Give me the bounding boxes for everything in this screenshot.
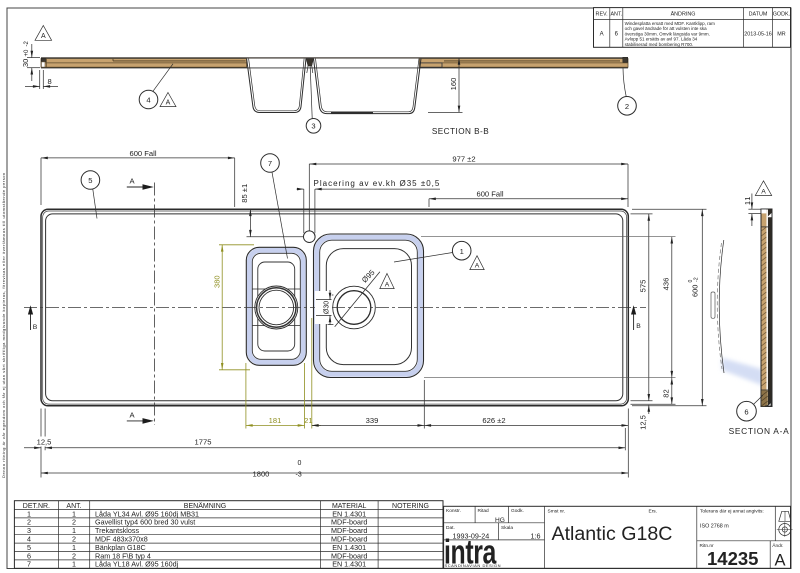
svg-text:82: 82 [661, 389, 670, 397]
svg-text:Låda YL18 Avl. Ø95 160dj: Låda YL18 Avl. Ø95 160dj [95, 560, 179, 569]
svg-text:B: B [33, 324, 38, 331]
svg-text:1:6: 1:6 [531, 531, 541, 540]
svg-text:436: 436 [661, 278, 670, 291]
svg-text:REV.: REV. [596, 12, 608, 18]
svg-text:ÄNDRING: ÄNDRING [671, 11, 696, 18]
svg-text:A: A [600, 32, 604, 38]
svg-text:14235: 14235 [707, 548, 758, 569]
svg-text:Smst nr.: Smst nr. [548, 509, 566, 515]
svg-text:160: 160 [449, 78, 458, 91]
svg-text:Ers.: Ers. [649, 509, 658, 515]
svg-text:Denna ritning är vår egendom o: Denna ritning är vår egendom och får ej … [1, 172, 6, 478]
svg-text:12,5: 12,5 [639, 415, 648, 430]
svg-text:626 ±2: 626 ±2 [482, 416, 505, 425]
svg-text:600: 600 [691, 285, 700, 297]
svg-text:1800: 1800 [253, 470, 270, 479]
svg-text:SCANDINAVIAN DESIGN: SCANDINAVIAN DESIGN [445, 563, 502, 568]
svg-text:12,5: 12,5 [37, 438, 52, 447]
svg-text:A: A [475, 262, 480, 269]
svg-text:B: B [636, 323, 641, 330]
svg-text:21: 21 [304, 416, 312, 425]
svg-text:Avlopp 51 ersätts av avl 97. L: Avlopp 51 ersätts av avl 97. Låda 34 [625, 36, 698, 42]
svg-text:977 ±2: 977 ±2 [452, 154, 475, 163]
svg-text:1: 1 [460, 247, 464, 256]
svg-text:Ändr.: Ändr. [772, 542, 783, 549]
svg-text:+0: +0 [24, 49, 30, 57]
svg-text:0: 0 [688, 280, 694, 283]
svg-text:Atlantic G18C: Atlantic G18C [552, 523, 673, 545]
svg-text:-2: -2 [694, 277, 700, 282]
svg-text:stabiliserad med bombering R70: stabiliserad med bombering R700. [625, 42, 694, 47]
svg-text:2013-05-16: 2013-05-16 [744, 32, 772, 38]
svg-text:-3: -3 [296, 472, 302, 479]
svg-text:1775: 1775 [195, 438, 212, 447]
svg-text:A: A [385, 281, 390, 288]
svg-text:-2: -2 [24, 41, 30, 47]
svg-text:Dat.: Dat. [446, 525, 455, 531]
svg-text:GODK.: GODK. [773, 12, 790, 18]
svg-text:1: 1 [72, 560, 76, 569]
svg-text:85 ±1: 85 ±1 [240, 184, 249, 203]
svg-text:0: 0 [298, 460, 302, 467]
svg-text:MR: MR [777, 32, 785, 38]
svg-text:Konstr.: Konstr. [446, 508, 461, 514]
svg-text:Placering av ev.kh Ø35 ±0,5: Placering av ev.kh Ø35 ±0,5 [314, 179, 441, 188]
svg-text:Skala: Skala [501, 525, 513, 531]
svg-text:6: 6 [744, 407, 748, 416]
svg-text:A: A [761, 188, 766, 195]
svg-text:380: 380 [212, 275, 221, 288]
svg-text:Ø30: Ø30 [324, 301, 331, 314]
svg-text:7: 7 [268, 159, 272, 168]
svg-text:600 Fall: 600 Fall [476, 189, 503, 198]
svg-text:339: 339 [366, 416, 379, 425]
svg-text:11: 11 [743, 196, 752, 205]
svg-text:A: A [166, 99, 171, 106]
svg-text:SECTION A-A: SECTION A-A [729, 426, 790, 436]
svg-text:EN 1.4301: EN 1.4301 [332, 560, 366, 569]
svg-text:ANT.: ANT. [610, 12, 622, 18]
svg-text:Ritad: Ritad [478, 508, 490, 514]
svg-text:Godk.: Godk. [511, 508, 524, 514]
svg-text:DATUM: DATUM [749, 12, 768, 18]
svg-text:2: 2 [625, 102, 629, 111]
svg-text:5: 5 [88, 176, 92, 185]
svg-text:30: 30 [21, 59, 30, 67]
svg-text:181: 181 [269, 416, 282, 425]
svg-text:7: 7 [27, 560, 31, 569]
svg-text:A: A [41, 33, 46, 40]
svg-text:HG: HG [495, 517, 505, 524]
svg-text:NOTERING: NOTERING [392, 503, 429, 510]
svg-text:8: 8 [48, 77, 52, 86]
svg-text:A: A [775, 551, 786, 569]
svg-text:600 Fall: 600 Fall [129, 149, 156, 158]
svg-text:3: 3 [311, 122, 315, 131]
svg-text:575: 575 [638, 280, 647, 293]
svg-text:ISO 2768 m: ISO 2768 m [700, 524, 729, 530]
svg-text:Tolerans där ej annat angivits: Tolerans där ej annat angivits: [700, 509, 764, 515]
svg-text:4: 4 [146, 96, 150, 105]
svg-text:SECTION B-B: SECTION B-B [432, 127, 489, 136]
